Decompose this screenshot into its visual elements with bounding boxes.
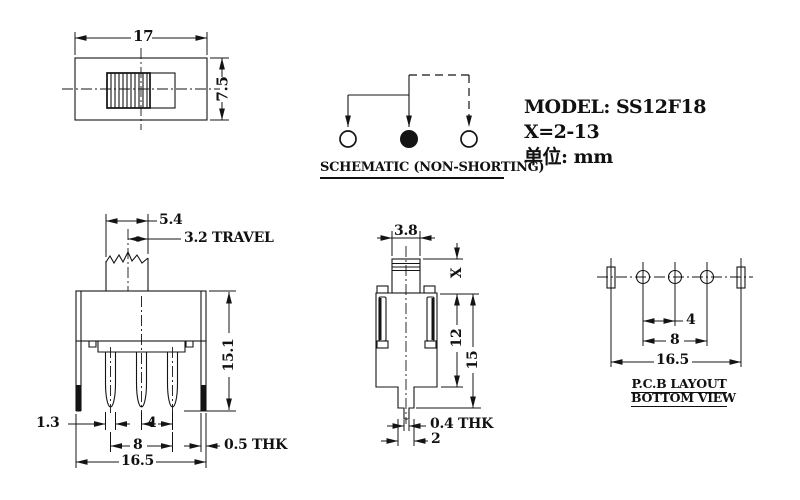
schematic-drawing bbox=[340, 75, 477, 148]
terminal-common-circle bbox=[400, 130, 418, 148]
front-height-dim: 15.1 bbox=[222, 339, 236, 372]
drawing-linework bbox=[0, 0, 800, 500]
side-knob-depth-dim: 3.8 bbox=[394, 224, 417, 238]
front-overall-width-dim: 16.5 bbox=[121, 454, 154, 468]
side-tip-width-dim: 2 bbox=[431, 432, 440, 446]
side-terminal-thk-dim: 0.4 THK bbox=[430, 417, 493, 431]
terminal-1-circle bbox=[340, 131, 356, 147]
top-view-height-dim: 7.5 bbox=[216, 76, 231, 101]
front-pin-span-dim: 8 bbox=[133, 438, 142, 452]
top-view-drawing bbox=[62, 32, 229, 130]
datasheet-drawing: 17 7.5 SCHEMATIC (NON-SHORTING) MODEL: S… bbox=[0, 0, 800, 500]
side-view-drawing bbox=[376, 231, 481, 446]
model-number: MODEL: SS12F18 bbox=[524, 98, 706, 117]
front-knob-width-dim: 5.4 bbox=[159, 213, 182, 227]
schematic-caption: SCHEMATIC (NON-SHORTING) bbox=[320, 161, 504, 179]
side-body-height-dim: 12 bbox=[450, 329, 464, 348]
unit-label: 单位: mm bbox=[524, 148, 613, 167]
front-cover-thk-dim: 0.5 THK bbox=[224, 438, 287, 452]
front-pin-pitch-dim: 4 bbox=[147, 416, 156, 430]
pcb-caption-line2: BOTTOM VIEW bbox=[631, 392, 727, 407]
front-travel-dim: 3.2 TRAVEL bbox=[184, 231, 274, 245]
terminal-3-circle bbox=[461, 131, 477, 147]
x-range: X=2-13 bbox=[524, 123, 599, 142]
side-overall-height-dim: 15 bbox=[466, 351, 480, 370]
front-pin-width-dim: 1.3 bbox=[36, 416, 59, 430]
pcb-pitch-dim: 4 bbox=[686, 313, 695, 327]
pcb-span-dim: 8 bbox=[670, 333, 679, 347]
top-view-width-dim: 17 bbox=[133, 29, 153, 44]
pcb-overall-dim: 16.5 bbox=[656, 353, 689, 367]
pcb-layout-drawing bbox=[597, 258, 753, 367]
side-knob-height-dim: X bbox=[450, 268, 464, 279]
